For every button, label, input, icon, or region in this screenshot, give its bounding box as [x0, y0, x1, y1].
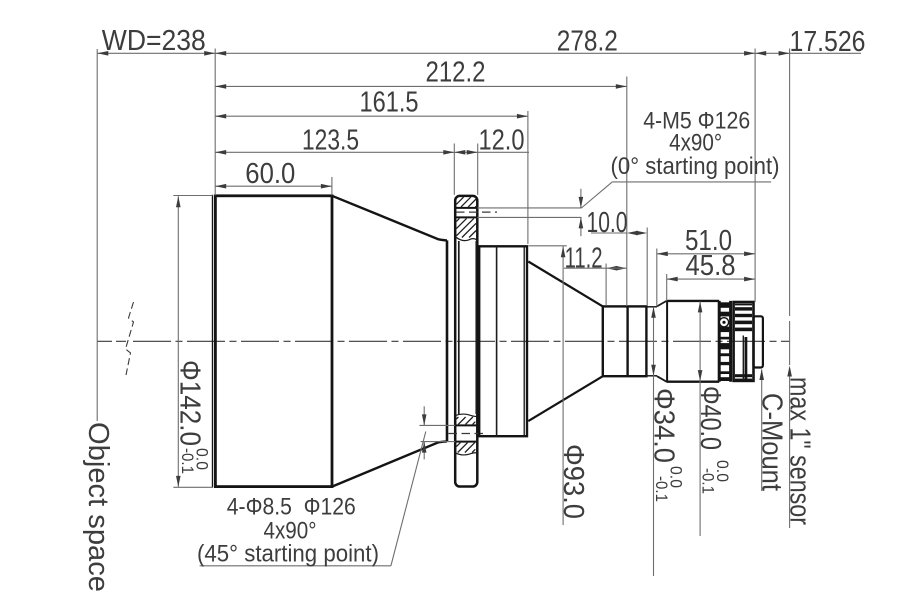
svg-text:17.526: 17.526 [790, 26, 866, 58]
svg-text:-0.1: -0.1 [652, 476, 670, 502]
svg-text:212.2: 212.2 [426, 57, 486, 89]
svg-text:(0° starting point): (0° starting point) [611, 153, 780, 180]
svg-text:Φ93.0: Φ93.0 [557, 444, 589, 519]
svg-text:161.5: 161.5 [360, 87, 419, 119]
svg-text:Object space: Object space [82, 422, 114, 592]
svg-text:11.2: 11.2 [565, 242, 603, 274]
svg-text:WD=238: WD=238 [102, 25, 206, 57]
svg-text:max 1" sensor: max 1" sensor [784, 377, 816, 525]
svg-text:(45° starting point): (45° starting point) [197, 541, 379, 568]
svg-text:-0.1: -0.1 [699, 468, 717, 494]
svg-text:123.5: 123.5 [302, 125, 359, 157]
svg-text:45.8: 45.8 [686, 250, 736, 282]
svg-text:10.0: 10.0 [587, 207, 628, 239]
svg-text:Φ34.0: Φ34.0 [648, 388, 680, 463]
svg-text:-0.1: -0.1 [178, 448, 196, 474]
svg-text:60.0: 60.0 [245, 158, 295, 190]
svg-text:C-Mount: C-Mount [755, 393, 787, 491]
svg-text:278.2: 278.2 [557, 26, 618, 58]
svg-text:Φ142.0: Φ142.0 [174, 360, 206, 446]
svg-text:Φ40.0: Φ40.0 [694, 386, 726, 450]
svg-text:12.0: 12.0 [479, 125, 525, 157]
